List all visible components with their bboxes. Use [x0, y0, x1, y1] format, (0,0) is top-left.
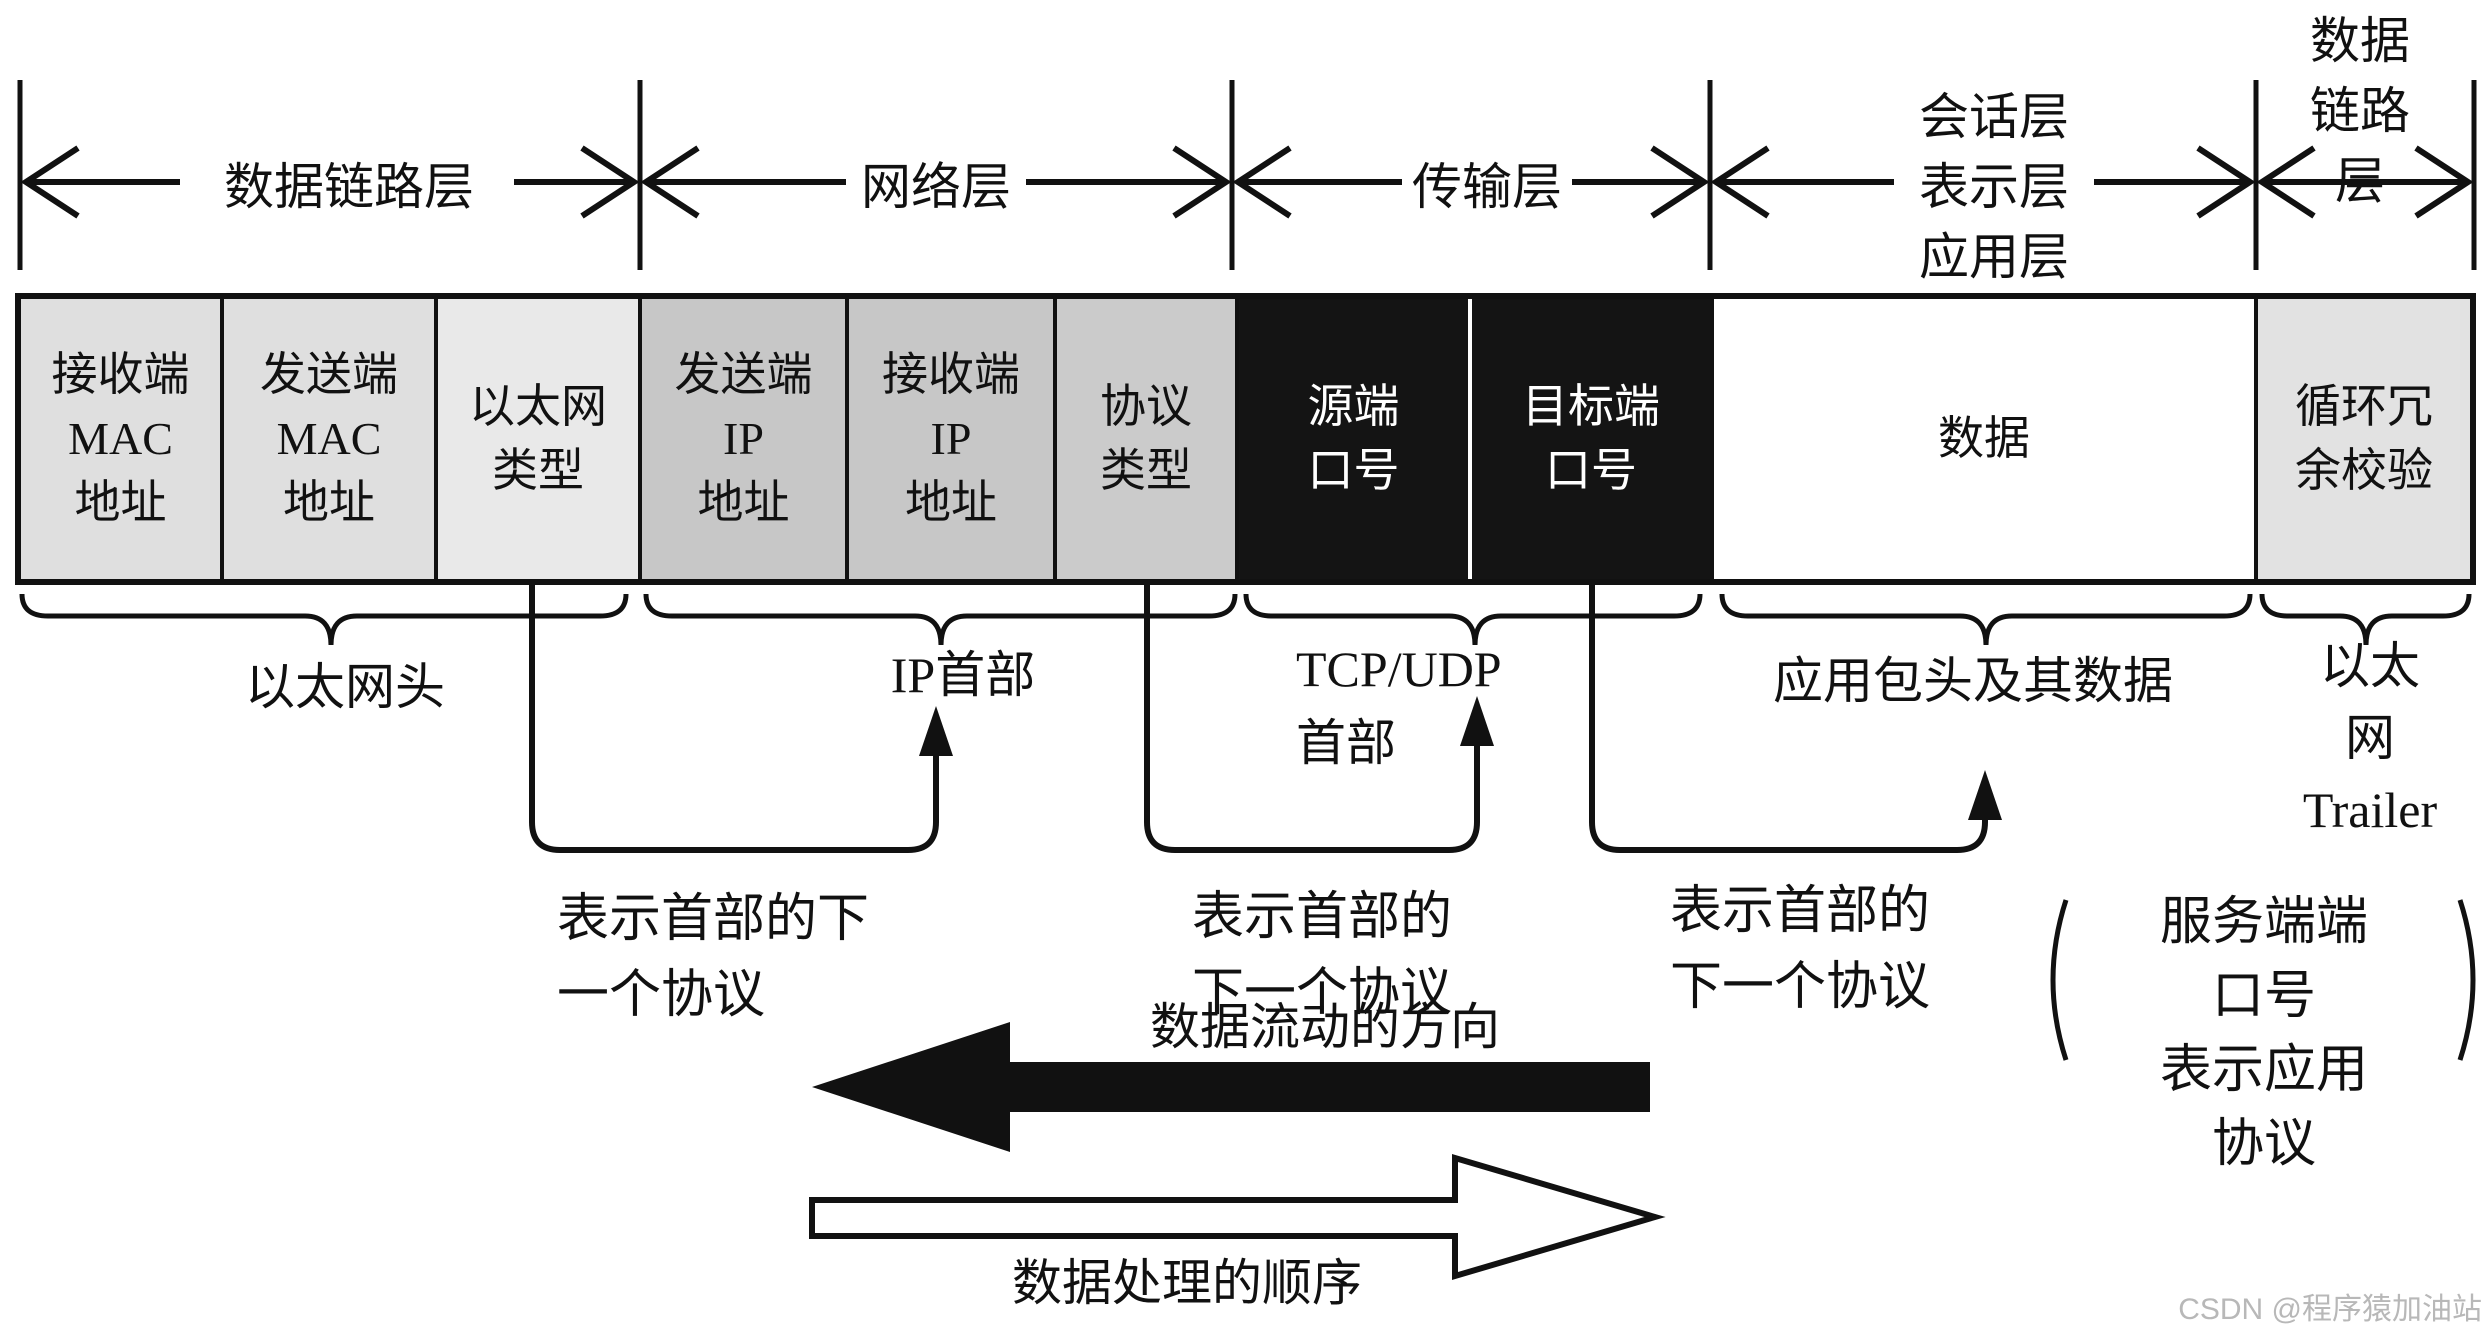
- osi-label-network: 网络层: [861, 152, 1011, 222]
- field-src-mac: 发送端 MAC 地址: [224, 299, 438, 579]
- field-src-ip: 发送端 IP 地址: [642, 299, 849, 579]
- osi-label-datalink-left: 数据链路层: [224, 152, 474, 222]
- packet-field-row: 接收端 MAC 地址 发送端 MAC 地址 以太网 类型 发送端 IP 地址 接…: [15, 293, 2476, 585]
- label-ip-header: IP首部: [891, 640, 1035, 710]
- osi-label-session: 会话层: [1919, 82, 2069, 152]
- label-ethernet-trailer: 以太网 Trailer: [2303, 630, 2437, 846]
- field-dst-port: 目标端 口号: [1472, 299, 1714, 579]
- connector-ethertype-to-ip: [532, 552, 936, 850]
- field-label: 接收端 IP 地址: [882, 343, 1020, 535]
- packet-structure-diagram: 数据链路层 网络层 传输层 会话层 表示层 应用层 数据 链路层 接收端 MAC…: [0, 0, 2490, 1324]
- field-label: 发送端 IP 地址: [675, 343, 813, 535]
- side-note-text: 服务端端口号 表示应用协议: [2151, 886, 2377, 1182]
- osi-label-presentation: 表示层: [1919, 152, 2069, 222]
- field-protocol-type: 协议 类型: [1057, 299, 1239, 579]
- field-crc: 循环冗 余校验: [2258, 299, 2470, 579]
- label-ethernet-header: 以太网头: [245, 652, 445, 722]
- field-label: 循环冗 余校验: [2295, 375, 2433, 503]
- field-label: 以太网 类型: [469, 375, 607, 503]
- field-label: 协议 类型: [1100, 375, 1192, 503]
- watermark: CSDN @程序猿加油站: [2178, 1284, 2482, 1324]
- group-braces: [22, 594, 2469, 645]
- arrowhead-up-icon: [919, 706, 953, 756]
- brace-ethernet-header: [22, 594, 626, 645]
- field-ethertype: 以太网 类型: [438, 299, 642, 579]
- label-tcpudp-header: TCP/UDP 首部: [1296, 632, 1502, 780]
- field-label: 发送端 MAC 地址: [260, 343, 398, 535]
- annotation-next-protocol-3: 表示首部的 下一个协议: [1670, 874, 1930, 1026]
- label-process-order: 数据处理的顺序: [1012, 1248, 1362, 1318]
- annotation-next-protocol-1: 表示首部的下 一个协议: [557, 882, 869, 1034]
- label-app-header-data: 应用包头及其数据: [1773, 646, 2173, 716]
- field-label: 目标端 口号: [1522, 375, 1660, 503]
- osi-label-datalink-right-1: 数据: [2310, 6, 2410, 76]
- osi-label-datalink-right-2: 链路层: [2295, 76, 2425, 216]
- field-label: 数据: [1938, 407, 2030, 471]
- paren-left-icon: [2053, 900, 2066, 1060]
- field-src-port: 源端 口号: [1239, 299, 1472, 579]
- field-label: 接收端 MAC 地址: [52, 343, 190, 535]
- field-dst-mac: 接收端 MAC 地址: [21, 299, 224, 579]
- field-dst-ip: 接收端 IP 地址: [849, 299, 1057, 579]
- field-data: 数据: [1714, 299, 2258, 579]
- osi-label-application: 应用层: [1919, 222, 2069, 292]
- next-protocol-connectors: [532, 552, 1985, 850]
- brace-app-data: [1722, 594, 2250, 645]
- arrowhead-up-icon: [1968, 770, 2002, 820]
- field-label: 源端 口号: [1308, 375, 1400, 503]
- paren-right-icon: [2460, 900, 2473, 1060]
- label-data-flow-direction: 数据流动的方向: [1150, 992, 1500, 1062]
- osi-label-transport: 传输层: [1412, 152, 1562, 222]
